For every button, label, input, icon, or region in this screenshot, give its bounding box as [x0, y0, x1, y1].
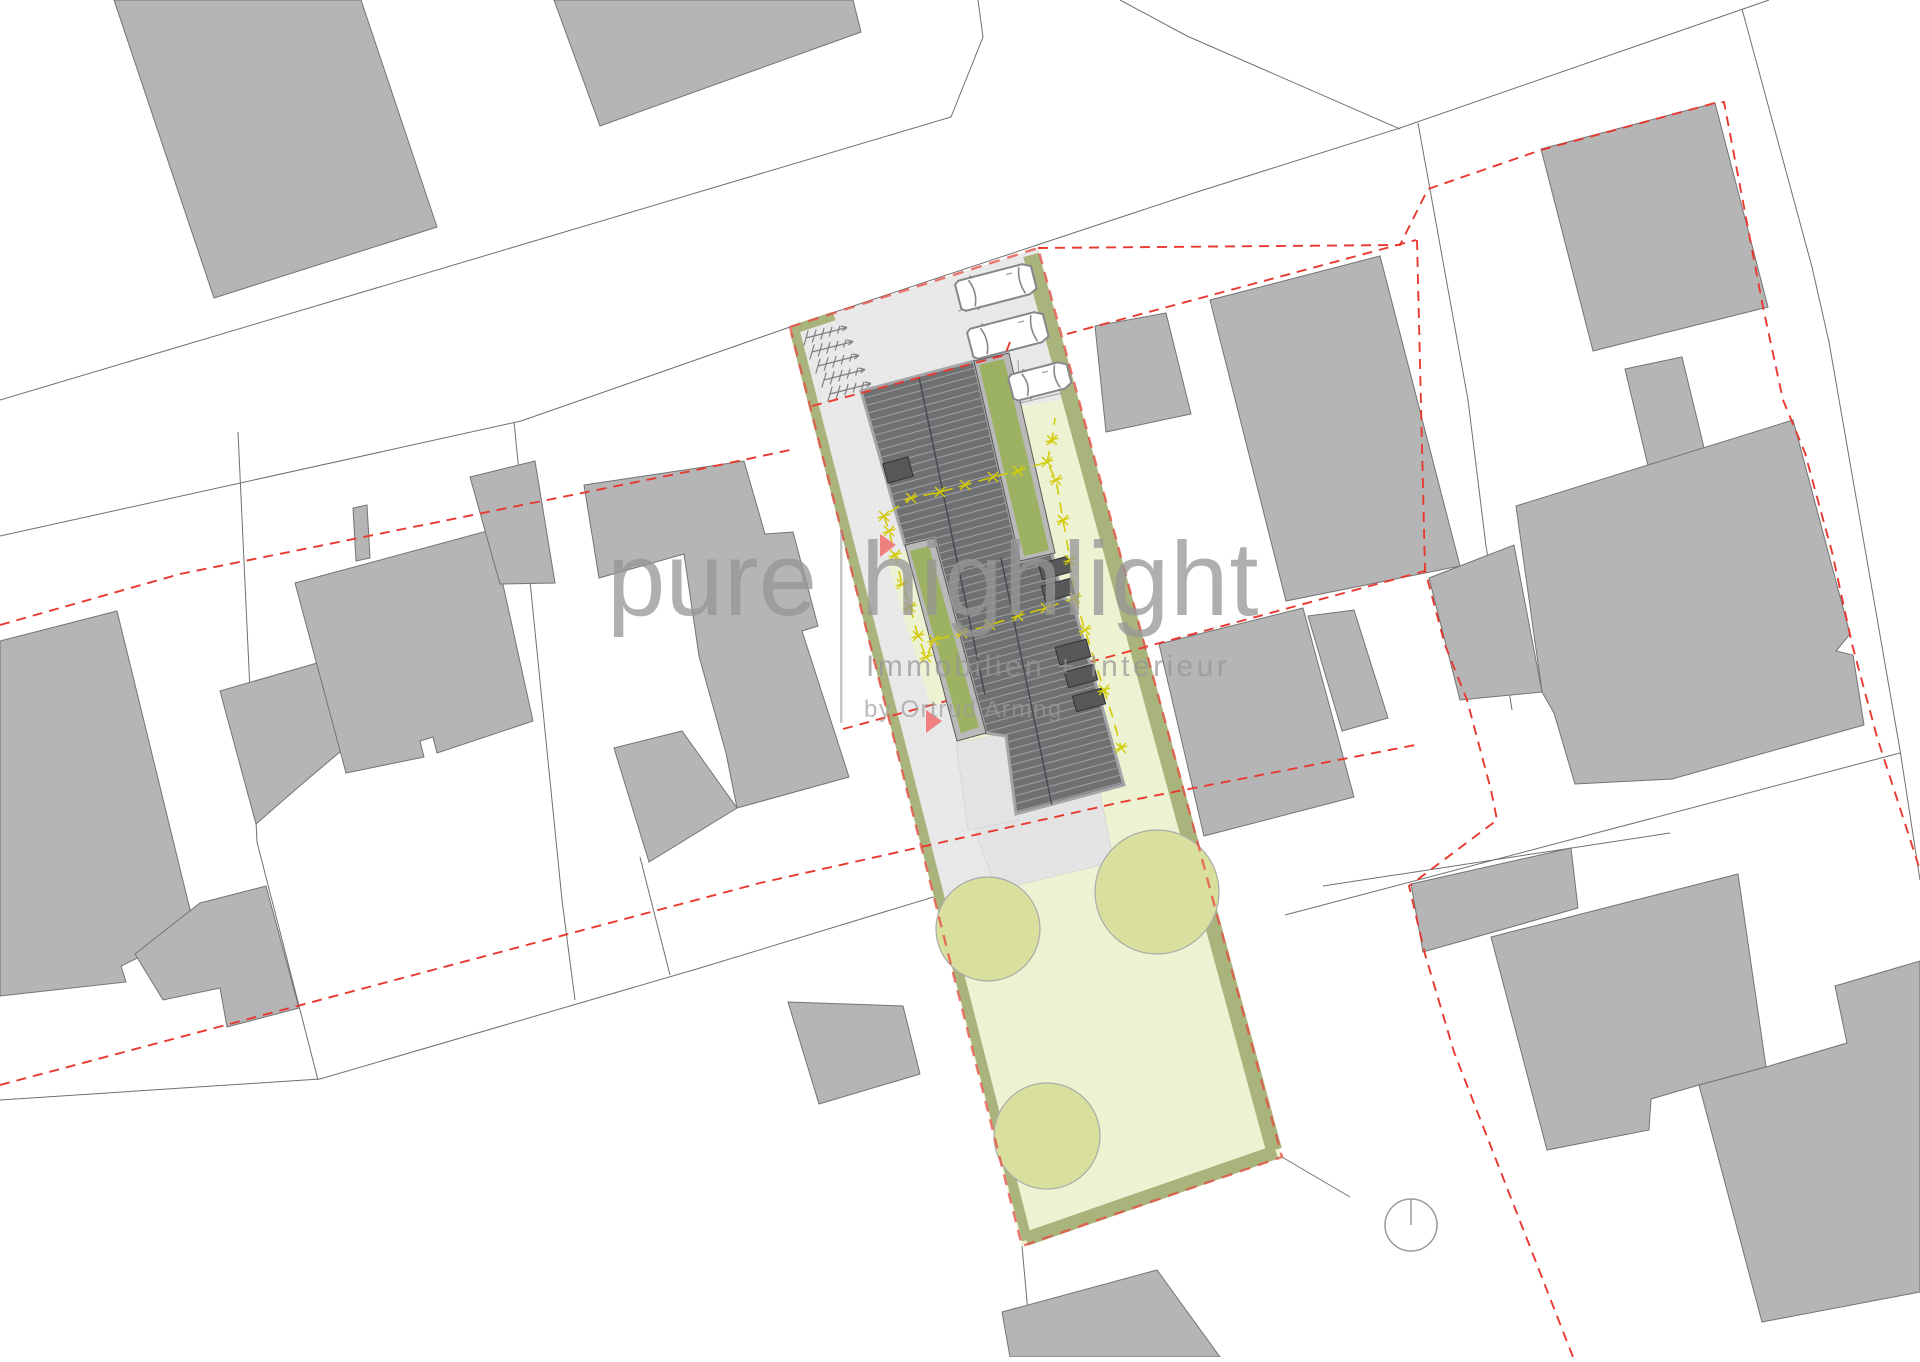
svg-text:pure: pure	[607, 521, 817, 638]
svg-text:highlight: highlight	[861, 521, 1259, 638]
svg-text:Immobilien + Interieur: Immobilien + Interieur	[866, 650, 1230, 683]
svg-text:by Ortrud Arning: by Ortrud Arning	[864, 696, 1063, 723]
